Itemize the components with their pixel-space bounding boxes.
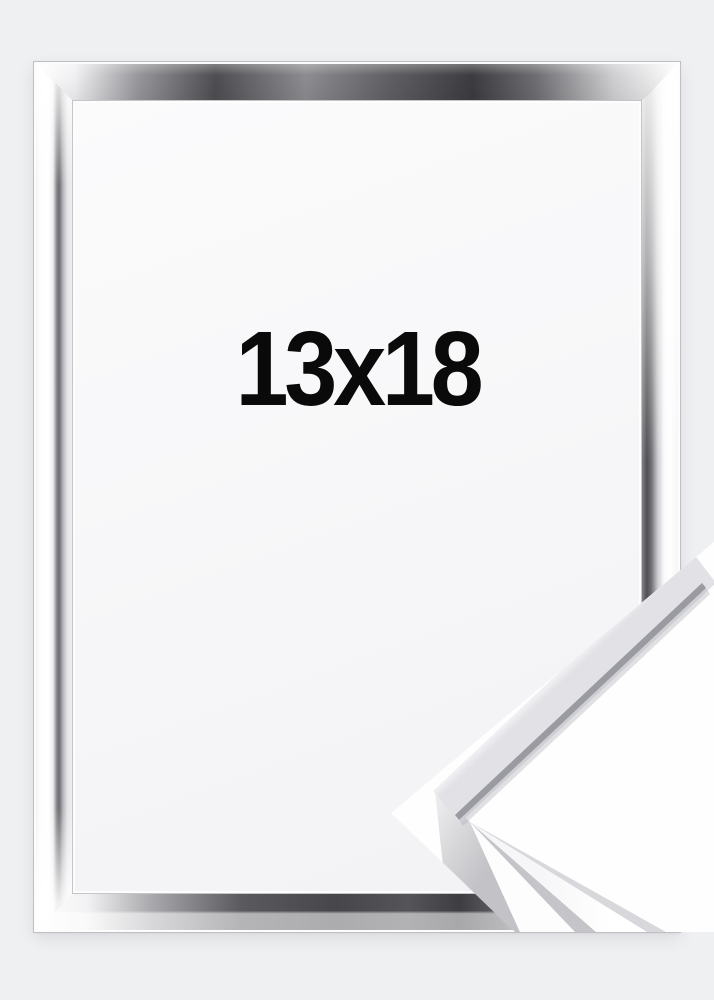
product-photo: 13x18 [0,0,714,1000]
corner-profile-detail [0,0,714,1000]
